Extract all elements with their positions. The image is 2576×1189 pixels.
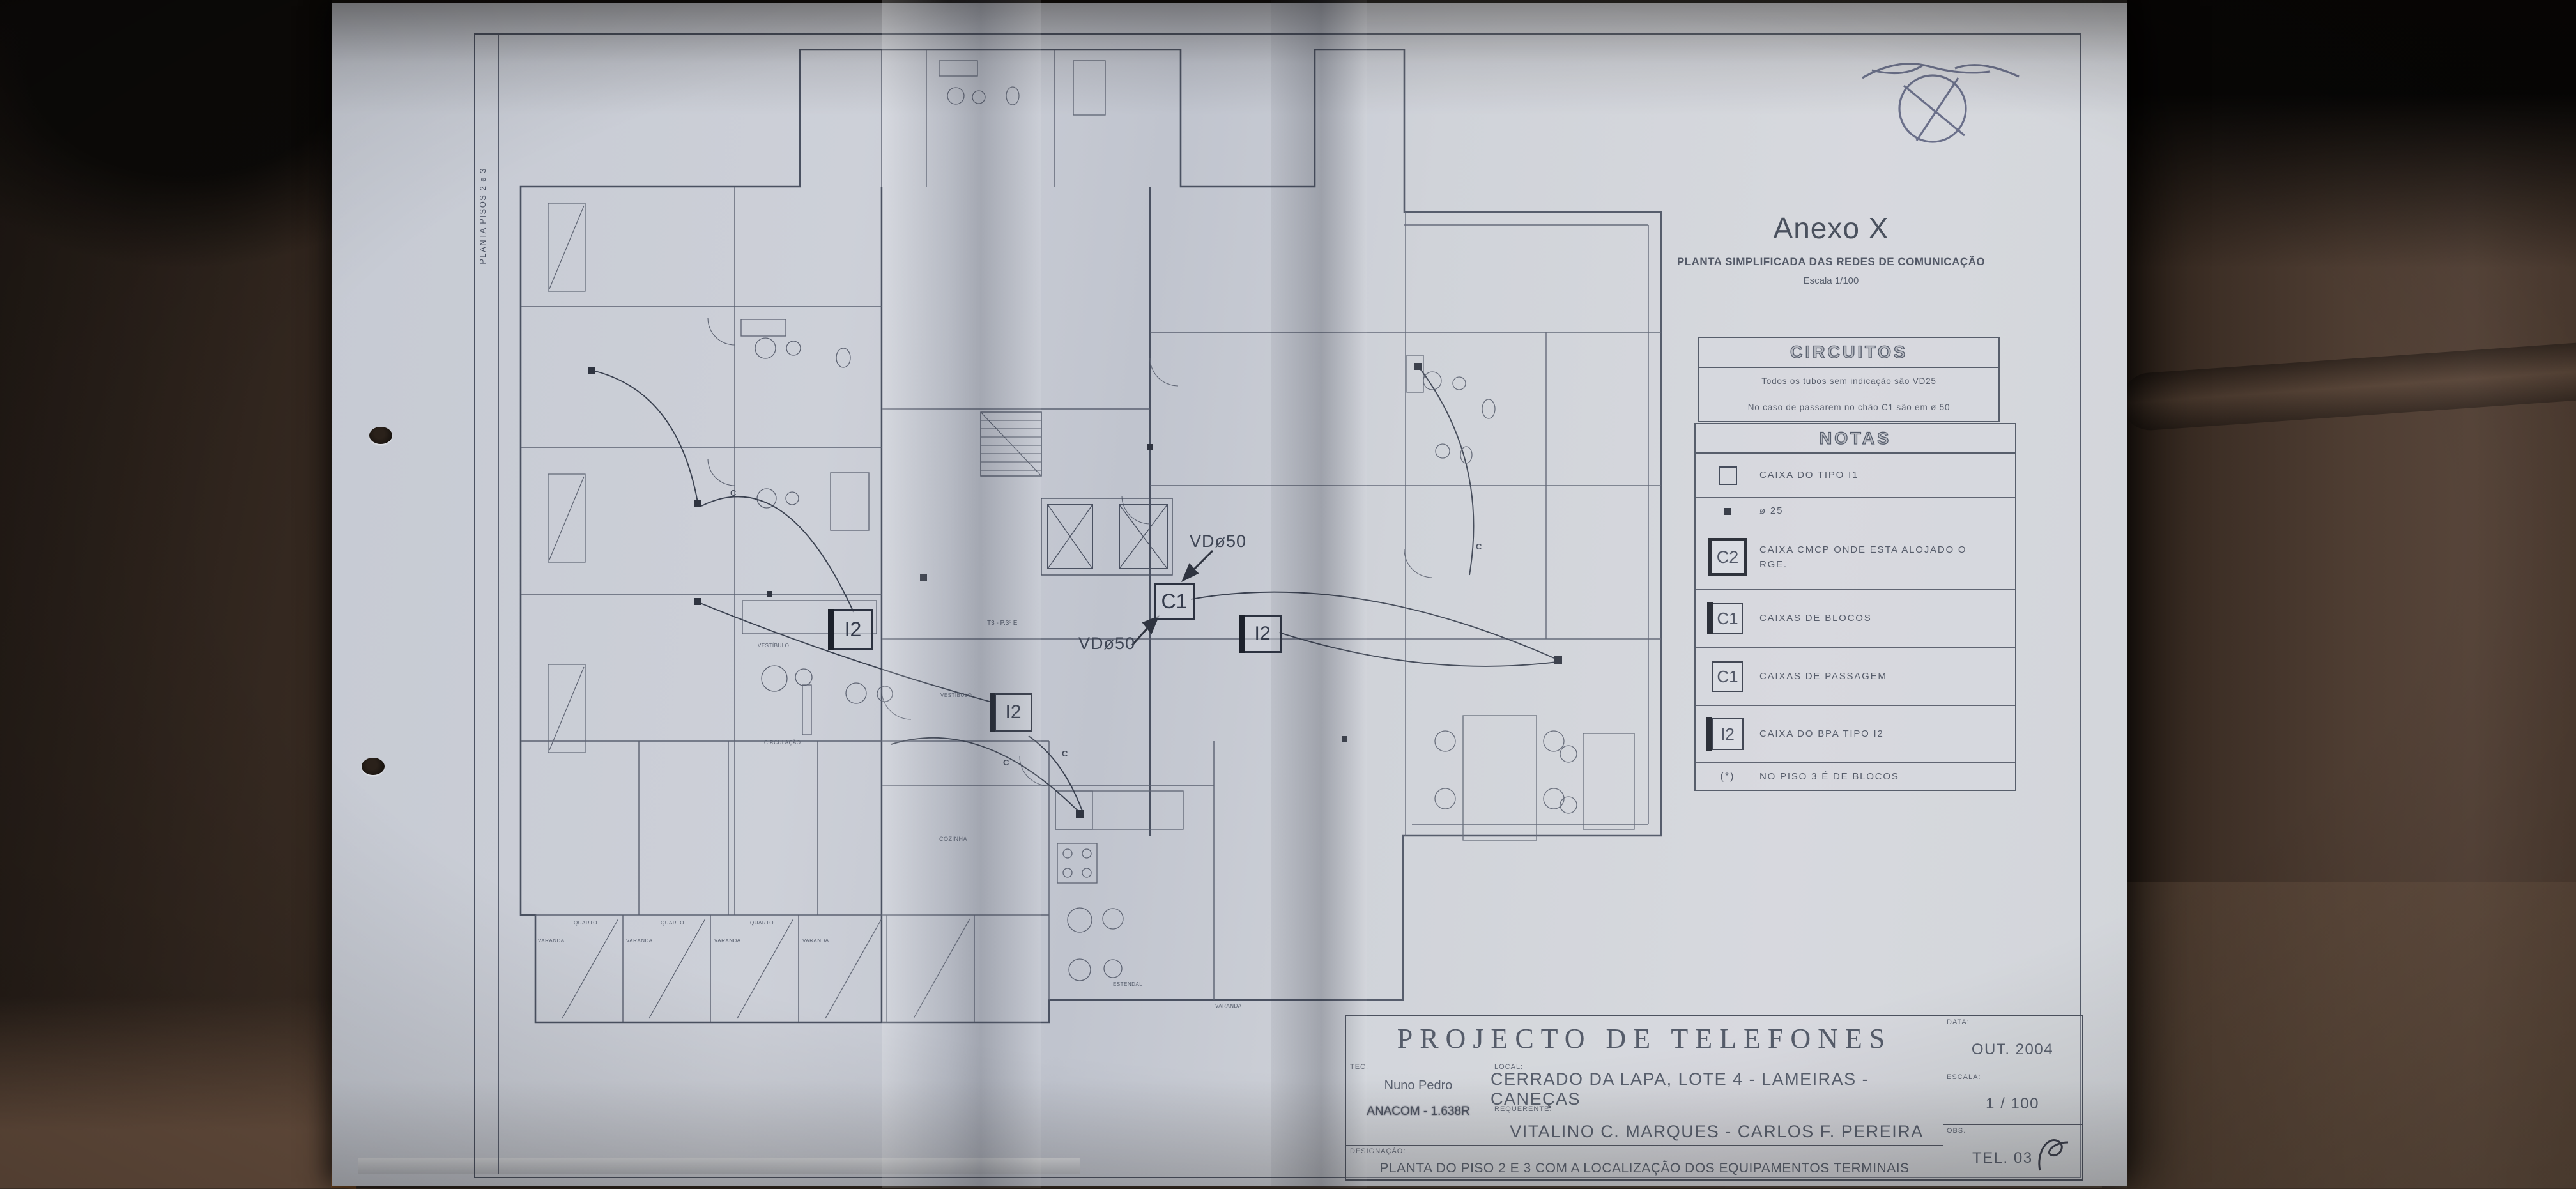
circuit-letter-c-1: C [730, 488, 736, 498]
paper-bottom-shade [332, 1080, 2127, 1188]
leather-bottom-left [0, 997, 345, 1188]
room-label-quarto-3: QUARTO [750, 920, 774, 926]
paper-fold-left [882, 0, 1041, 1188]
room-label-circulacao: CIRCULAÇÃO [764, 740, 801, 746]
circuit-letter-c-3: C [1062, 749, 1068, 758]
paper-right-highlight [1367, 0, 2127, 1188]
room-label-varanda-5: VARANDA [1215, 1003, 1242, 1009]
room-label-quarto-1: QUARTO [574, 920, 597, 926]
plan-marker-c1: C1 [1154, 583, 1195, 620]
plan-label-vd50-bottom: VDø50 [1078, 634, 1135, 654]
room-label-estendal: ESTENDAL [1113, 981, 1142, 987]
room-label-varanda-4: VARANDA [802, 938, 829, 944]
photo-of-telephone-project-blueprint: { "scene": { "colors": { "leather_dark":… [0, 0, 2576, 1188]
plan-label-vd50-top: VDø50 [1190, 532, 1246, 551]
room-label-vestibulo-a: VESTÍBULO [758, 643, 789, 648]
room-label-varanda-1: VARANDA [538, 938, 565, 944]
room-label-varanda-2: VARANDA [626, 938, 653, 944]
plan-marker-i2-left: I2 [832, 609, 873, 650]
punch-hole-top [369, 427, 392, 444]
room-label-quarto-2: QUARTO [661, 920, 684, 926]
punch-hole-bottom [362, 758, 385, 775]
paper-fold-right [1271, 0, 1367, 1188]
room-label-varanda-3: VARANDA [714, 938, 741, 944]
